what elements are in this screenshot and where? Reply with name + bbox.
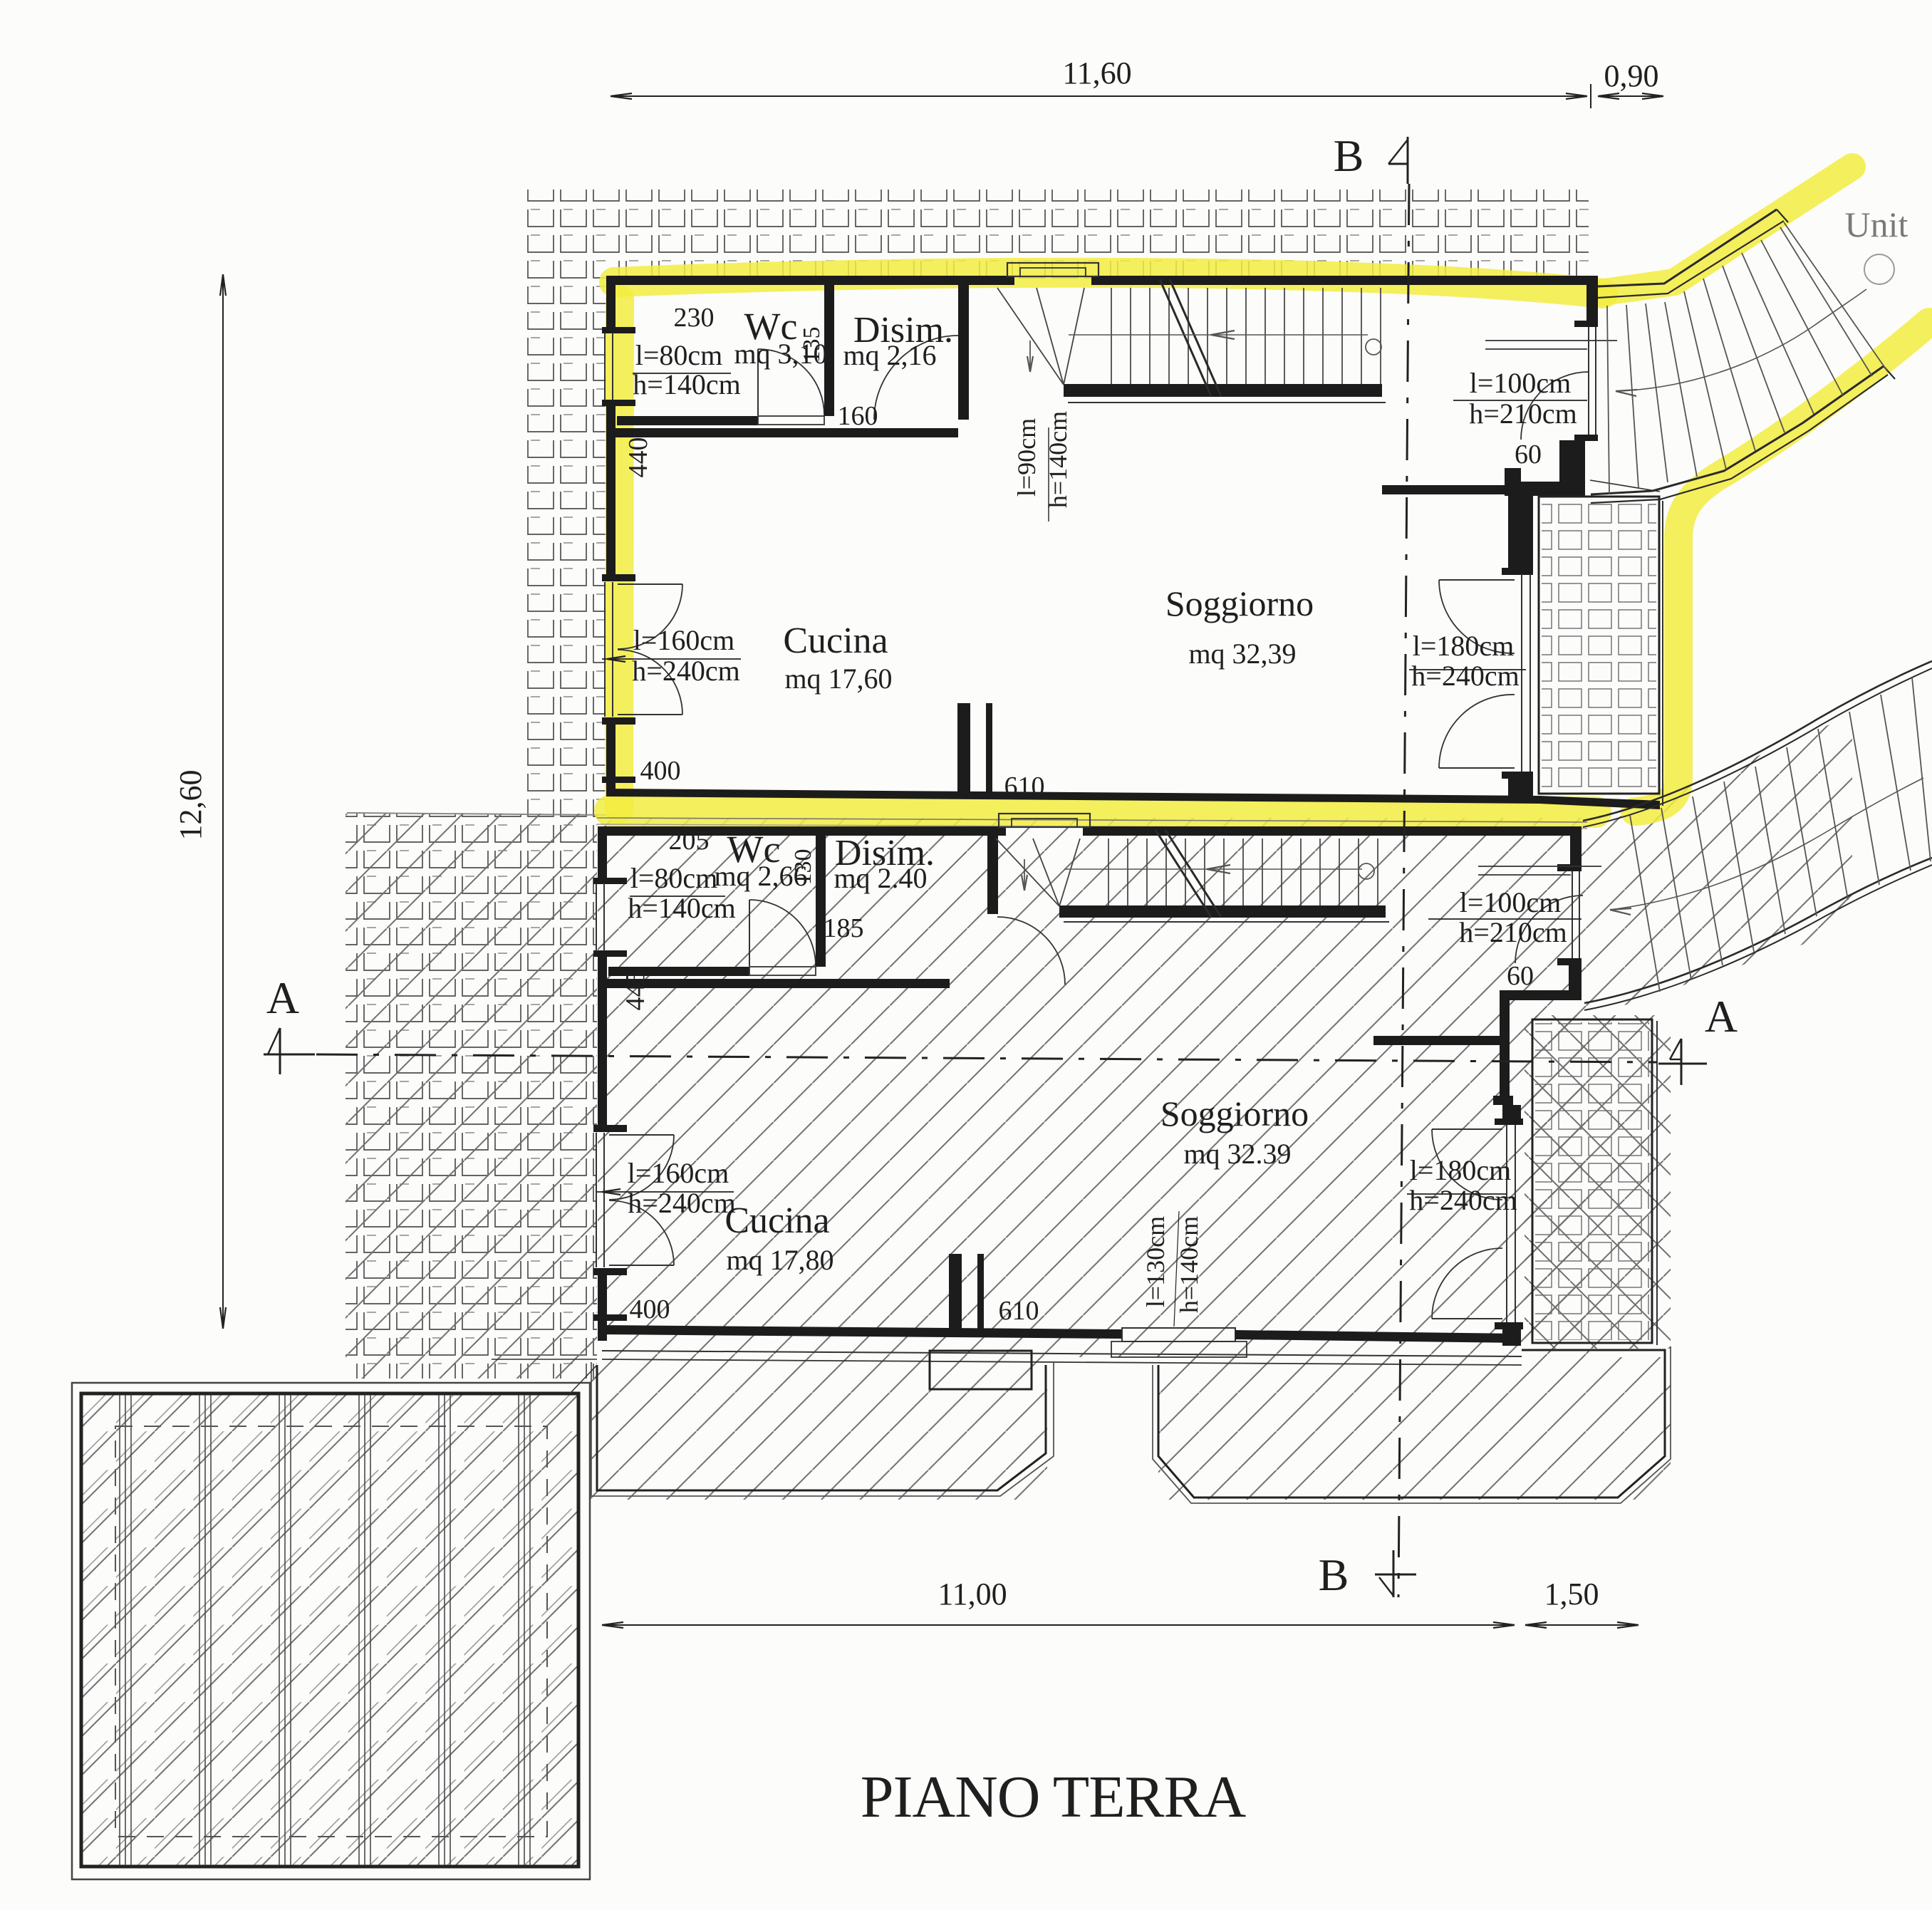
- svg-text:h=240cm: h=240cm: [628, 1187, 735, 1219]
- svg-text:135: 135: [799, 327, 825, 363]
- svg-text:h=140cm: h=140cm: [1175, 1216, 1203, 1313]
- svg-text:PIANO TERRA: PIANO TERRA: [861, 1764, 1247, 1830]
- svg-text:A: A: [1705, 991, 1738, 1042]
- svg-text:h=210cm: h=210cm: [1469, 398, 1577, 430]
- svg-text:Unit: Unit: [1845, 204, 1908, 244]
- svg-text:l=130cm: l=130cm: [1141, 1216, 1170, 1307]
- svg-text:445: 445: [620, 970, 650, 1011]
- svg-text:A: A: [266, 972, 299, 1023]
- svg-text:l=100cm: l=100cm: [1460, 886, 1562, 918]
- svg-text:mq 2.40: mq 2.40: [833, 862, 927, 894]
- svg-text:400: 400: [630, 1294, 670, 1324]
- svg-text:130: 130: [790, 849, 816, 886]
- svg-text:B: B: [1319, 1550, 1349, 1600]
- svg-text:l=90cm: l=90cm: [1012, 418, 1041, 497]
- svg-text:h=240cm: h=240cm: [1411, 660, 1519, 692]
- svg-text:h=140cm: h=140cm: [1044, 411, 1072, 508]
- svg-text:1,50: 1,50: [1544, 1577, 1599, 1611]
- svg-text:h=140cm: h=140cm: [628, 892, 735, 924]
- svg-text:60: 60: [1507, 961, 1534, 991]
- svg-text:11,60: 11,60: [1062, 56, 1131, 90]
- svg-text:205: 205: [669, 826, 710, 856]
- svg-text:0,90: 0,90: [1604, 58, 1659, 93]
- svg-text:Cucina: Cucina: [783, 621, 888, 661]
- svg-text:B: B: [1334, 130, 1364, 181]
- svg-text:mq 17,80: mq 17,80: [726, 1244, 833, 1276]
- svg-text:h=210cm: h=210cm: [1459, 916, 1567, 948]
- svg-text:400: 400: [640, 756, 681, 786]
- svg-text:mq 32.39: mq 32.39: [1183, 1138, 1291, 1170]
- svg-text:Soggiorno: Soggiorno: [1165, 583, 1314, 623]
- svg-text:l=180cm: l=180cm: [1410, 1154, 1512, 1186]
- svg-text:mq 17,60: mq 17,60: [784, 663, 892, 695]
- svg-text:160: 160: [838, 401, 878, 431]
- svg-text:11,00: 11,00: [938, 1577, 1007, 1611]
- svg-text:610: 610: [1004, 772, 1045, 801]
- svg-text:l=180cm: l=180cm: [1413, 630, 1515, 662]
- svg-text:l=160cm: l=160cm: [633, 624, 735, 656]
- svg-text:h=240cm: h=240cm: [1409, 1184, 1517, 1216]
- svg-text:610: 610: [999, 1296, 1039, 1326]
- svg-text:h=140cm: h=140cm: [633, 368, 740, 400]
- svg-text:l=160cm: l=160cm: [628, 1157, 729, 1189]
- svg-text:185: 185: [824, 913, 864, 943]
- svg-text:l=80cm: l=80cm: [630, 862, 718, 894]
- svg-text:Cucina: Cucina: [724, 1200, 829, 1241]
- svg-text:mq 32,39: mq 32,39: [1188, 638, 1296, 670]
- svg-text:mq 2,16: mq 2,16: [843, 339, 936, 371]
- svg-text:440: 440: [623, 437, 653, 478]
- svg-text:l=80cm: l=80cm: [635, 339, 723, 371]
- svg-text:60: 60: [1515, 440, 1542, 469]
- svg-text:l=100cm: l=100cm: [1470, 367, 1572, 399]
- svg-text:h=240cm: h=240cm: [632, 655, 739, 687]
- svg-text:Soggiorno: Soggiorno: [1160, 1094, 1309, 1133]
- svg-text:12,60: 12,60: [173, 770, 208, 841]
- svg-text:230: 230: [674, 303, 715, 333]
